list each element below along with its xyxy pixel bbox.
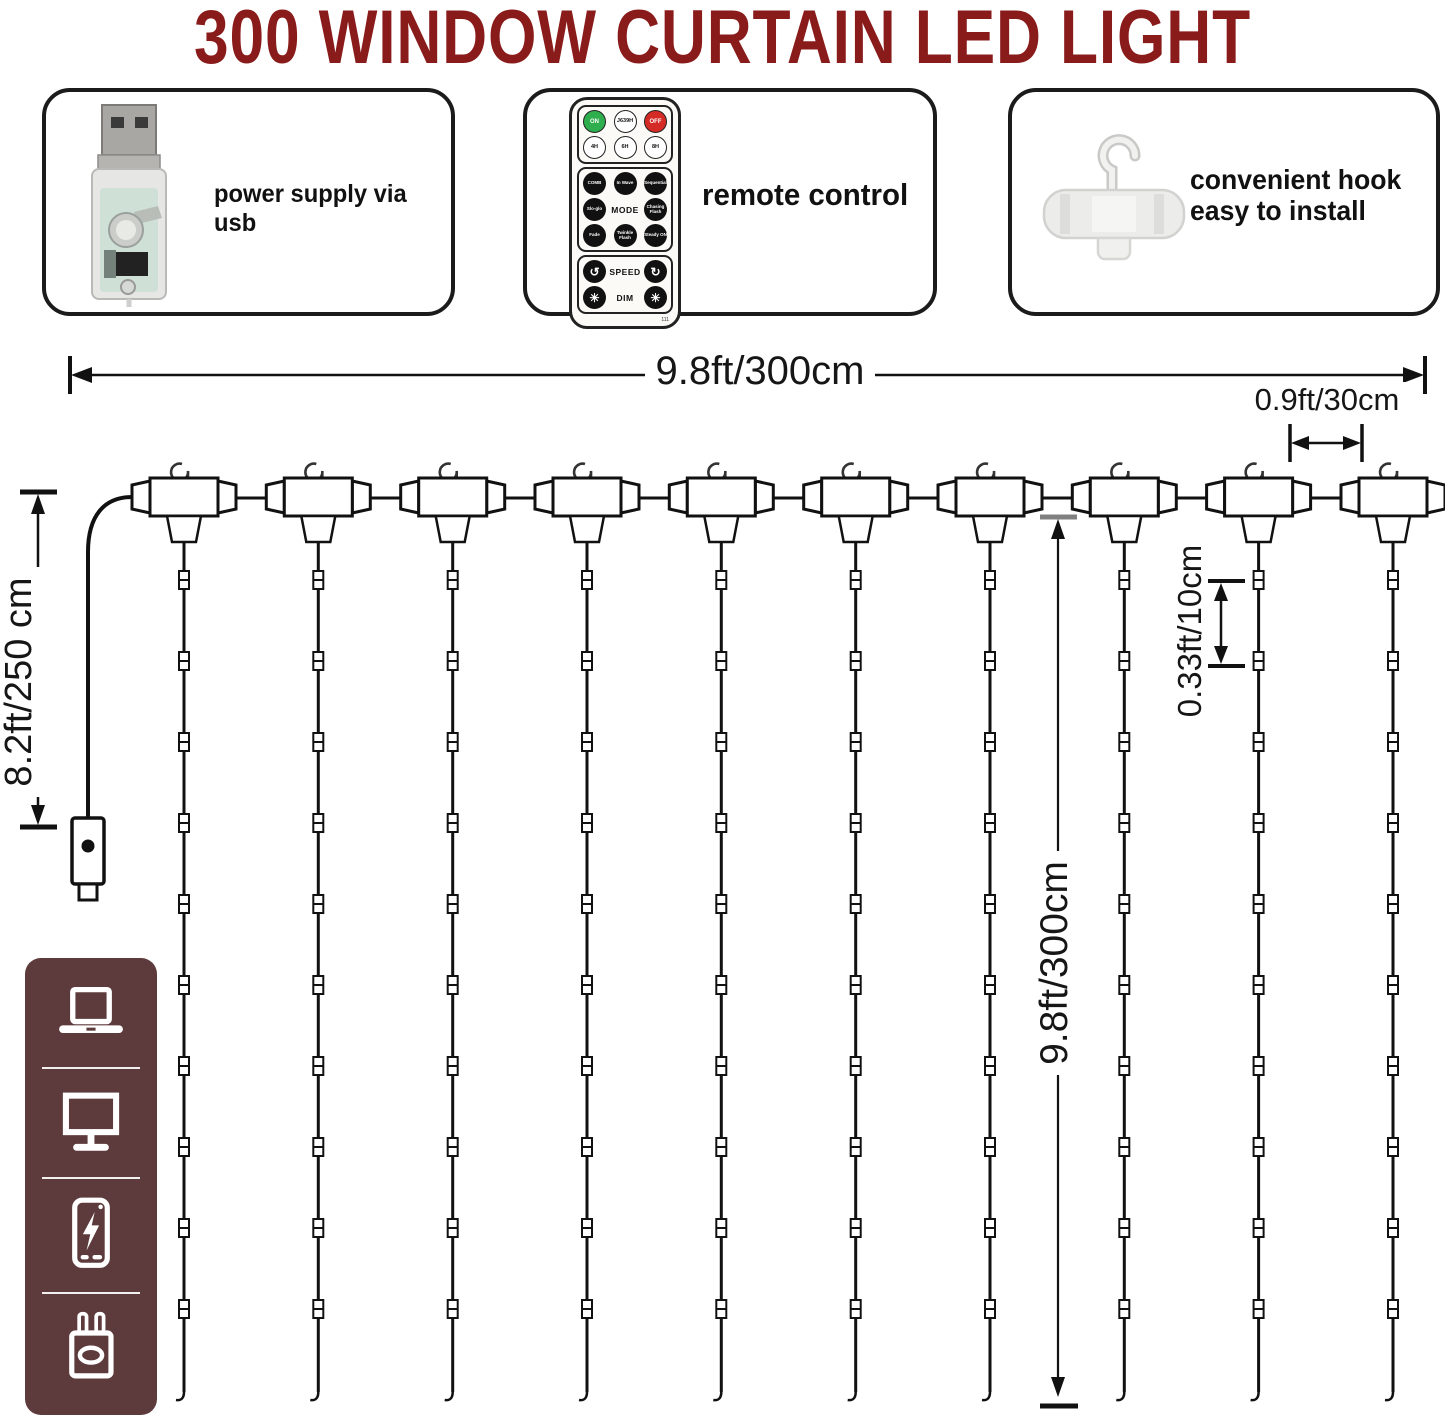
hook-assembly-5	[669, 464, 803, 1401]
total-width-dimension-label: 9.8ft/300cm	[540, 349, 980, 394]
remote-control-image: ON J639H OFF 4H 6H 8H COMB In Wave Seque…	[569, 97, 681, 329]
divider	[42, 1292, 140, 1294]
remote-sequential-button: Sequential	[644, 172, 667, 195]
remote-8h-button: 8H	[644, 136, 667, 159]
speed-up-icon: ↻	[644, 260, 667, 283]
remote-mode-label: MODE	[611, 205, 639, 215]
speed-down-icon: ↺	[583, 260, 606, 283]
power-source-icons-panel	[25, 958, 157, 1415]
remote-steady-button: Steady ON	[644, 224, 667, 247]
product-infographic: 300 WINDOW CURTAIN LED LIGHT power suppl…	[0, 0, 1445, 1421]
hook-assembly-6	[804, 464, 938, 1401]
remote-timer-button: J639H	[614, 110, 637, 133]
feature-box-hook: convenient hook easy to install	[1008, 88, 1440, 316]
remote-chasing-button: Chasing Flash	[644, 198, 667, 221]
remote-inwave-button: In Wave	[614, 172, 637, 195]
remote-model-code: 111	[577, 317, 673, 324]
usb-adapter-icon	[54, 1309, 128, 1391]
feature-usb-label: power supply via usb	[214, 180, 439, 238]
dim-up-icon: ☀	[644, 286, 667, 309]
power-cord-dimension-label: 8.2ft/250 cm	[0, 532, 42, 832]
hook-assembly-2	[266, 464, 400, 1401]
remote-speed-label: SPEED	[609, 267, 640, 277]
feature-box-usb: power supply via usb	[42, 88, 455, 316]
power-cord	[72, 497, 132, 900]
remote-twinkle-button: Twinkle Flash	[614, 224, 637, 247]
remote-dim-label: DIM	[616, 293, 633, 303]
feature-hook-label: convenient hook easy to install	[1190, 164, 1401, 227]
remote-comb-button: COMB	[583, 172, 606, 195]
divider	[42, 1067, 140, 1069]
hook-assembly-4	[535, 464, 669, 1401]
divider	[42, 1177, 140, 1179]
page-title-text: 300 WINDOW CURTAIN LED LIGHT	[194, 0, 1251, 81]
remote-power-timer-group: ON J639H OFF 4H 6H 8H	[577, 105, 673, 164]
remote-6h-button: 6H	[614, 136, 637, 159]
page-title: 300 WINDOW CURTAIN LED LIGHT	[0, 0, 1445, 81]
hook-image	[1034, 134, 1194, 284]
feature-hook-label-line1: convenient hook	[1190, 164, 1401, 195]
laptop-icon	[53, 982, 129, 1052]
power-bank-icon	[54, 1194, 128, 1276]
feature-hook-label-line2: easy to install	[1190, 195, 1401, 226]
remote-speed-dim-group: ↺ SPEED ↻ ☀ DIM ☀	[577, 255, 673, 314]
feature-remote-label: remote control	[702, 177, 908, 213]
usb-plug-image	[74, 102, 189, 307]
hook-assembly-9	[1207, 464, 1341, 1401]
drop-height-dimension-label: 9.8ft/300cm	[1033, 838, 1079, 1088]
monitor-icon	[53, 1085, 129, 1161]
dim-down-icon: ☀	[583, 286, 606, 309]
remote-fade-button: Fade	[583, 224, 606, 247]
led-spacing-dimension-label: 0.33ft/10cm	[1171, 516, 1211, 746]
remote-mode-group: COMB In Wave Sequential Slo-glo MODE Cha…	[577, 167, 673, 252]
hook-spacing-dimension-label: 0.9ft/30cm	[1217, 382, 1437, 418]
remote-off-button: OFF	[644, 110, 667, 133]
hook-assembly-3	[401, 464, 535, 1401]
remote-4h-button: 4H	[583, 136, 606, 159]
remote-on-button: ON	[583, 110, 606, 133]
feature-box-remote: ON J639H OFF 4H 6H 8H COMB In Wave Seque…	[523, 88, 937, 316]
remote-sloglo-button: Slo-glo	[583, 198, 606, 221]
hook-assembly-10	[1341, 464, 1445, 1401]
